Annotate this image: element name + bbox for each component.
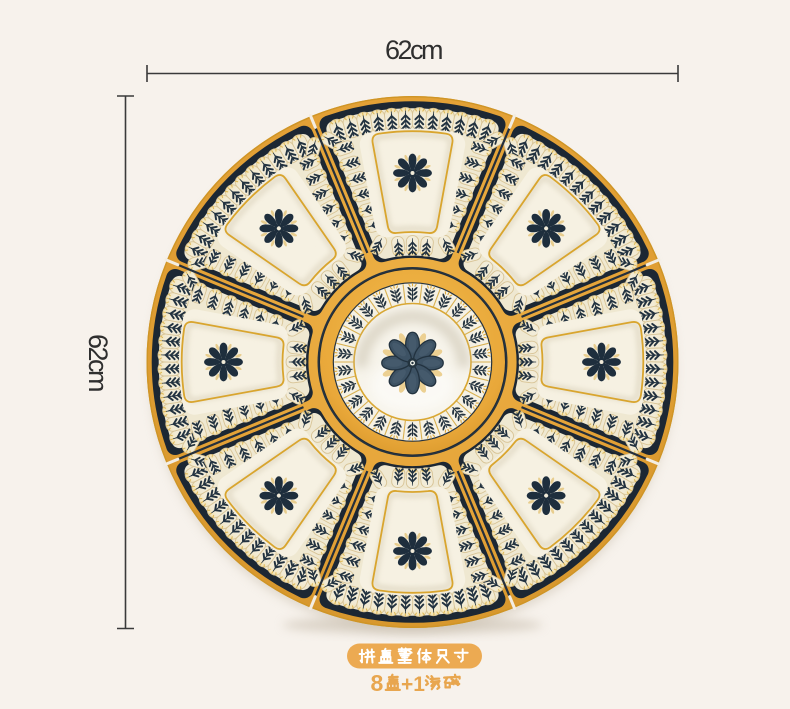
svg-text:62cm: 62cm (83, 334, 113, 391)
svg-text:+1: +1 (401, 673, 425, 696)
svg-text:8: 8 (371, 670, 384, 696)
svg-text:62cm: 62cm (385, 35, 442, 65)
